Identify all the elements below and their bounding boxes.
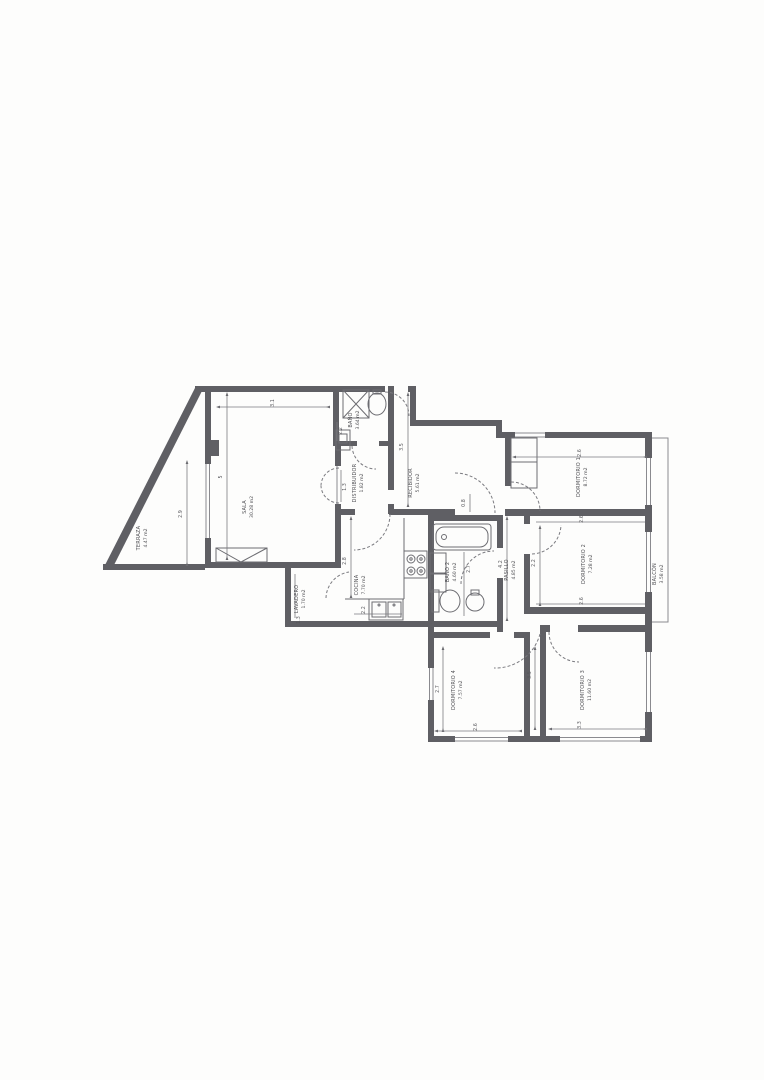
windows bbox=[206, 433, 668, 741]
dim-label-10: 2.7 bbox=[466, 565, 472, 573]
floor-plan: TERRAZA 4.47 m2 SALA 30.28 m2 BAÑO 3.64 … bbox=[0, 0, 764, 1080]
dim-label-8: 2.2 bbox=[361, 606, 367, 614]
scanned-floor-plan-page: TERRAZA 4.47 m2 SALA 30.28 m2 BAÑO 3.64 … bbox=[0, 0, 764, 1080]
room-label-dormitorio1-area: 8.72 m2 bbox=[583, 467, 589, 486]
dim-label-9: 1.3 bbox=[296, 616, 302, 624]
bath2-door-arc bbox=[461, 551, 494, 584]
dim-label-7: 2.8 bbox=[342, 557, 348, 565]
room-label-balcon-name: BALCÓN bbox=[651, 563, 658, 585]
dim-label-17: 2.7 bbox=[435, 685, 441, 693]
kitchen-sink bbox=[369, 599, 403, 620]
dim-label-3: 2.2 bbox=[338, 427, 344, 435]
room-label-dormitorio3-name: DORMITORIO 3 bbox=[580, 670, 586, 710]
room-label-dormitorio2-name: DORMITORIO 2 bbox=[581, 544, 587, 584]
dim-label-5: 3.5 bbox=[399, 443, 405, 451]
room-label-balcon-area: 3.58 m2 bbox=[659, 564, 665, 583]
dim-label-4: 1.3 bbox=[342, 483, 348, 491]
room-label-cocina-area: 7.70 m2 bbox=[361, 575, 367, 594]
room-label-sala-area: 30.28 m2 bbox=[249, 496, 255, 518]
dorm1-door-arc bbox=[511, 482, 540, 511]
toilet bbox=[432, 590, 460, 612]
room-label-sala-name: SALA bbox=[242, 500, 248, 514]
dim-label-2: 2.9 bbox=[178, 510, 184, 518]
room-label-dormitorio4-name: DORMITORIO 4 bbox=[451, 670, 457, 710]
balcony-outline bbox=[652, 438, 668, 622]
dorm1-top-window bbox=[515, 433, 545, 437]
dorm4-bottom-window bbox=[455, 738, 508, 742]
dim-label-16: 3.5 bbox=[527, 671, 533, 679]
room-label-dormitorio4-area: 7.57 m2 bbox=[458, 680, 464, 699]
sala-double-door-arc bbox=[321, 468, 339, 503]
room-label-bano2-name: BAÑO 2 bbox=[444, 562, 451, 583]
room-label-bano-area: 3.64 m2 bbox=[355, 410, 361, 429]
room-label-lavadero-name: LAVADERO bbox=[294, 585, 300, 614]
dim-label-0: 3.1 bbox=[270, 399, 276, 407]
room-label-lavadero-area: 1.70 m2 bbox=[301, 589, 307, 608]
room-label-dormitorio3-area: 11.60 m2 bbox=[587, 679, 593, 701]
dorm1-closet bbox=[511, 438, 537, 488]
dorm2-door-arc bbox=[532, 525, 561, 554]
room-label-dormitorio1-name: DORMITORIO 1 bbox=[576, 457, 582, 497]
dim-label-19: 3.3 bbox=[577, 721, 583, 729]
kitchen-door-arc bbox=[354, 514, 390, 550]
dim-label-14: 2.6 bbox=[579, 515, 585, 523]
room-label-terraza-name: TERRAZA bbox=[136, 525, 142, 551]
dim-label-15: 2.6 bbox=[579, 597, 585, 605]
dorm1-balcony-window bbox=[647, 458, 651, 505]
stove bbox=[404, 551, 427, 578]
room-label-pasillo-name: PASILLO bbox=[504, 559, 510, 581]
dim-label-1: 5 bbox=[218, 475, 224, 478]
room-label-bano2-area: 4.60 m2 bbox=[452, 562, 458, 581]
room-label-bano-name: BAÑO bbox=[347, 412, 354, 427]
sala-bay-marker bbox=[216, 548, 267, 562]
dim-label-12: 2.2 bbox=[531, 559, 537, 567]
dim-label-6: 0.8 bbox=[461, 499, 467, 507]
dorm4-door-arc bbox=[494, 634, 540, 668]
dorm2-balcony-window bbox=[647, 532, 651, 592]
walls bbox=[103, 386, 652, 742]
dim-label-18: 2.6 bbox=[473, 723, 479, 731]
dim-label-13: 2.6 bbox=[577, 449, 583, 457]
bathtub bbox=[433, 524, 491, 550]
room-label-recibidor-name: RECIBIDOR bbox=[408, 468, 414, 498]
dorm3-door-arc bbox=[549, 632, 579, 662]
dorm3-right-window bbox=[647, 652, 651, 712]
room-label-cocina-name: COCINA bbox=[354, 574, 360, 595]
room-label-distribuidor-area: 1.82 m2 bbox=[359, 473, 365, 492]
room-label-distribuidor-name: DISTRIBUIDOR bbox=[352, 463, 358, 502]
room-label-dormitorio2-area: 7.28 m2 bbox=[588, 554, 594, 573]
laundry-door-arc bbox=[326, 572, 349, 598]
bidet bbox=[466, 590, 484, 611]
room-label-pasillo-area: 4.85 m2 bbox=[511, 560, 517, 579]
bath1-sink bbox=[368, 390, 386, 415]
room-label-terraza-area: 4.47 m2 bbox=[143, 528, 149, 547]
terrace-wall bbox=[103, 386, 203, 569]
hall-door-arc bbox=[455, 473, 495, 513]
dorm4-left-window bbox=[430, 668, 434, 700]
dorm3-bottom-window bbox=[560, 738, 640, 742]
room-label-recibidor-area: 5.61 m2 bbox=[415, 473, 421, 492]
terrace-window bbox=[206, 464, 210, 538]
dim-label-11: 4.2 bbox=[498, 560, 504, 568]
